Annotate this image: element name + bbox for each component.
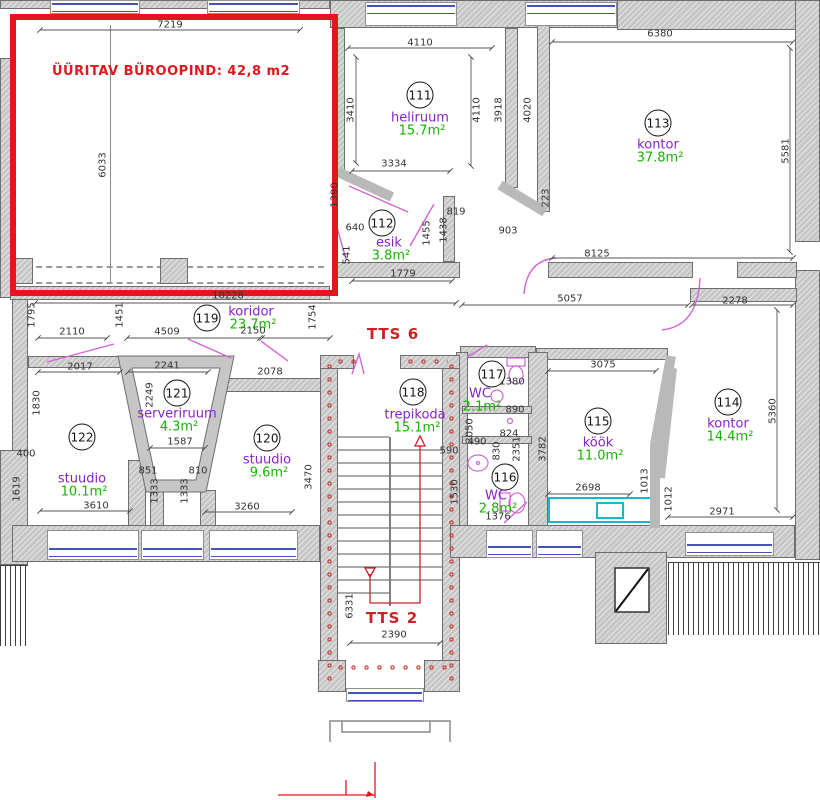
- dimension-label: 5057: [557, 294, 582, 305]
- room-number: 119: [194, 305, 221, 332]
- room-number: 120: [254, 425, 281, 452]
- room-area: 23.7m²: [230, 318, 277, 333]
- room-number: 115: [585, 408, 612, 435]
- dimension-label: 830: [492, 441, 503, 460]
- stair-route: [365, 436, 425, 603]
- dot-strip: [334, 357, 360, 366]
- dimension-label: 851: [138, 466, 157, 477]
- dimension-label: 490: [467, 437, 486, 448]
- room-number: 117: [479, 361, 506, 388]
- room-area: 10.1m²: [61, 485, 108, 500]
- highlight-rectangle: [10, 14, 338, 296]
- dimension-label: 2110: [59, 327, 84, 338]
- dimension-label: 400: [16, 449, 35, 460]
- dimension-label: 2241: [154, 361, 179, 372]
- dimension-label: 2698: [575, 483, 600, 494]
- floor-plan: ÜÜRITAV BÜROOPIND: 42,8 m2: [0, 0, 820, 800]
- dimension-label: 2278: [722, 296, 747, 307]
- room-number: 121: [164, 380, 191, 407]
- chimney-vent: [615, 568, 649, 612]
- dimension-label: 903: [498, 226, 517, 237]
- dimension-label: 1619: [12, 476, 23, 501]
- room-area: 4.3m²: [160, 420, 199, 435]
- dimension-label: 1451: [115, 302, 126, 327]
- dimension-label: 3470: [304, 464, 315, 489]
- highlight-label: ÜÜRITAV BÜROOPIND: 42,8 m2: [52, 64, 312, 79]
- dimension-label: 1530: [450, 479, 461, 504]
- room-area: 3.8m²: [372, 249, 411, 264]
- dimension-label: 890: [505, 405, 524, 416]
- dimension-label: 541: [342, 245, 353, 264]
- dimension-label: 1830: [32, 390, 43, 415]
- dimension-label: 3410: [346, 97, 357, 122]
- room-number: 114: [715, 389, 742, 416]
- dimension-label: 3610: [83, 501, 108, 512]
- staircase-label: TTS 2: [366, 609, 418, 627]
- dimension-label: 3075: [590, 360, 615, 371]
- dimension-label: 5360: [768, 398, 779, 423]
- dimension-label: 1333: [150, 478, 161, 503]
- room-area: 37.8m²: [637, 151, 684, 166]
- dimension-label: 1012: [664, 486, 675, 511]
- room-area: 2.1m²: [463, 400, 502, 415]
- dimension-label: 819: [446, 207, 465, 218]
- section-marks: [278, 762, 375, 798]
- dimension-label: 6331: [345, 593, 356, 618]
- dot-strip: [325, 360, 334, 682]
- staircase-label: TTS 6: [367, 325, 419, 343]
- dimension-label: 1013: [640, 468, 651, 493]
- dimension-label: 10228: [212, 291, 244, 302]
- dimension-label: 2351: [512, 436, 523, 461]
- dimension-label: 2390: [381, 630, 406, 641]
- room-number: 113: [645, 110, 672, 137]
- dot-strip: [404, 357, 448, 366]
- room-area: 15.7m²: [399, 124, 446, 139]
- dimension-label: 590: [439, 446, 458, 457]
- room-area: 2.8m²: [479, 502, 518, 517]
- dimension-label: 2017: [67, 362, 92, 373]
- dimension-label: 2249: [145, 382, 156, 407]
- dimension-label: 810: [188, 466, 207, 477]
- dimension-label: 1438: [439, 217, 450, 242]
- dimension-label: 1779: [390, 269, 415, 280]
- dimension-label: 1455: [422, 220, 433, 245]
- dimension-label: 2078: [257, 367, 282, 378]
- dimension-label: 3260: [234, 502, 259, 513]
- room-number: 111: [407, 82, 434, 109]
- dimension-label: 1587: [167, 437, 192, 448]
- dimension-label: 4509: [154, 327, 179, 338]
- dimension-label: 1795: [27, 302, 38, 327]
- dimension-label: 4020: [523, 97, 534, 122]
- porch-outline: [330, 721, 450, 742]
- dimension-label: 3334: [381, 159, 406, 170]
- dimension-label: 1754: [308, 304, 319, 329]
- room-number: 112: [369, 210, 396, 237]
- dot-strip: [334, 663, 448, 672]
- dimension-label: 640: [345, 223, 364, 234]
- room-area: 11.0m²: [577, 449, 624, 464]
- dimension-label: 6033: [98, 152, 109, 177]
- dimension-label: 3782: [538, 436, 549, 461]
- room-area: 9.6m²: [250, 466, 289, 481]
- dot-strip: [447, 360, 456, 682]
- dimension-label: 3918: [494, 97, 505, 122]
- room-area: 14.4m²: [707, 430, 754, 445]
- dimension-label: 8125: [584, 249, 609, 260]
- room-number: 122: [69, 424, 96, 451]
- dimension-label: 223: [541, 188, 552, 207]
- dimension-label: 4110: [407, 38, 432, 49]
- room-number: 118: [400, 379, 427, 406]
- dimension-label: 2971: [709, 507, 734, 518]
- dimension-label: 6380: [647, 29, 672, 40]
- room-area: 15.1m²: [394, 421, 441, 436]
- dimension-label: 4110: [472, 97, 483, 122]
- dimension-label: 7219: [157, 20, 182, 31]
- dimension-label: 1390: [330, 182, 341, 207]
- dimension-label: 1333: [180, 478, 191, 503]
- dimension-label: 5581: [781, 138, 792, 163]
- room-number: 116: [492, 464, 519, 491]
